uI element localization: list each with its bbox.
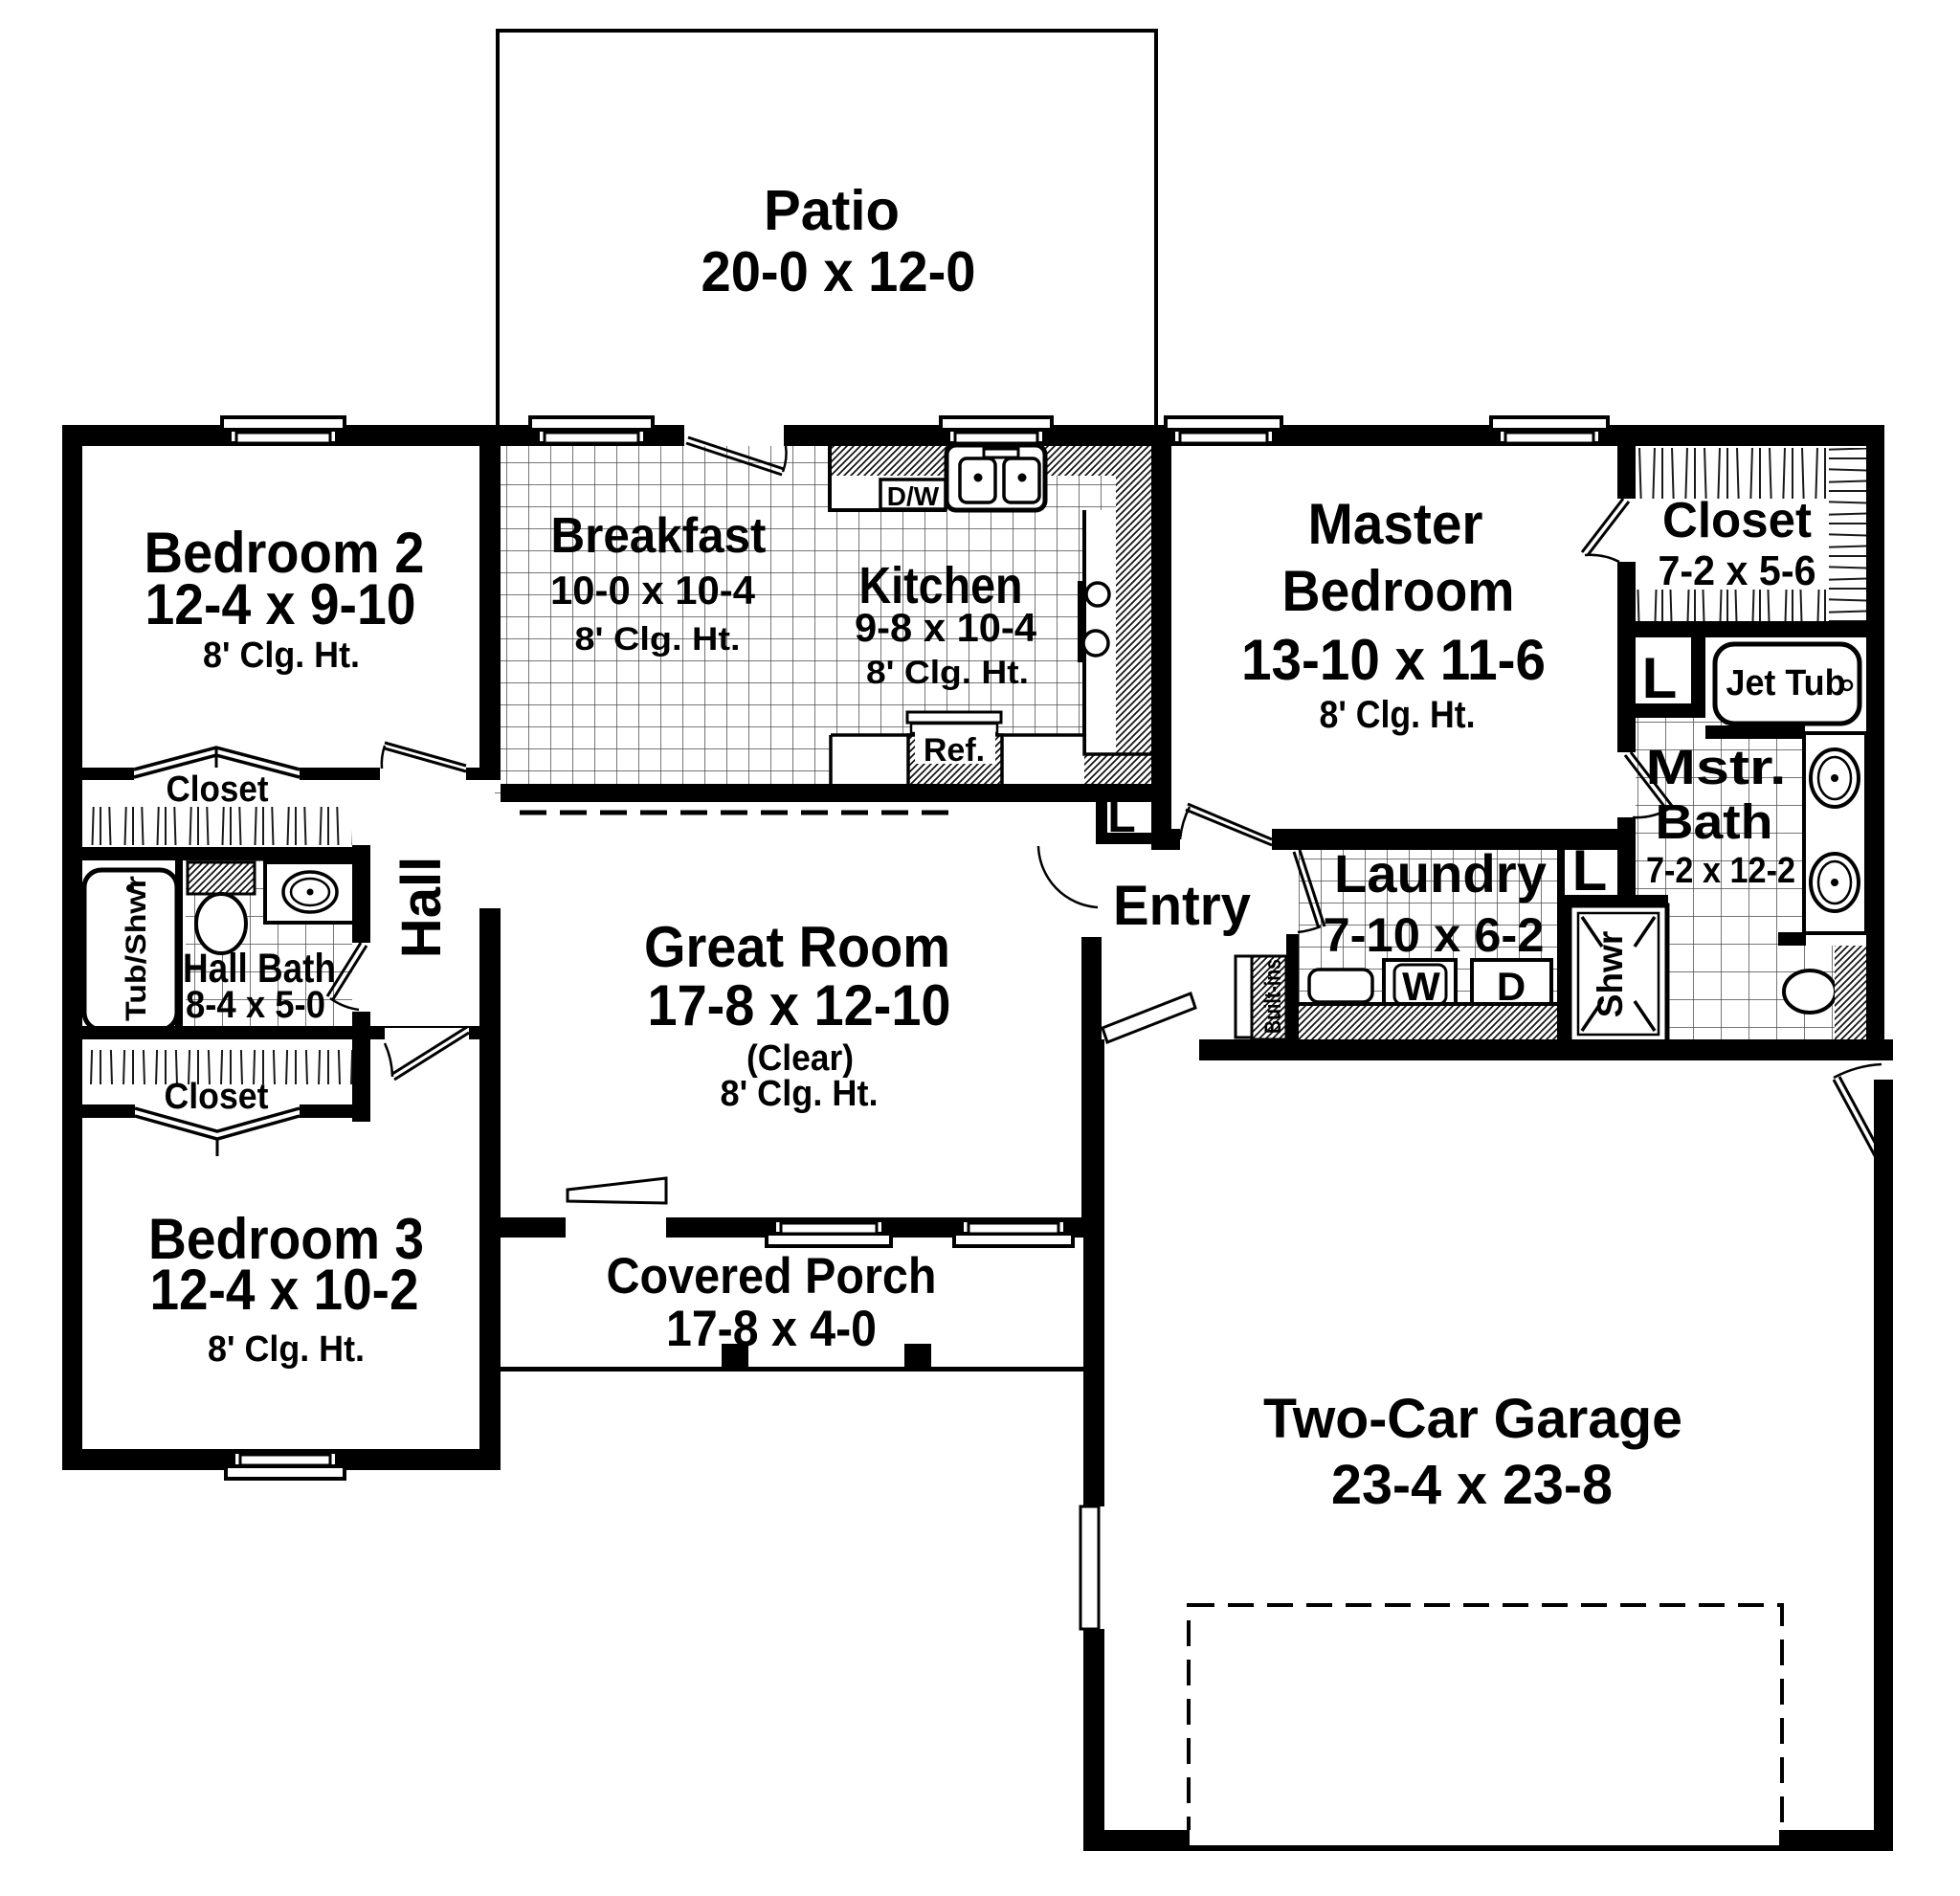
svg-text:Two-Car Garage: Two-Car Garage — [1263, 1388, 1682, 1450]
svg-text:7-2 x 5-6: 7-2 x 5-6 — [1659, 547, 1816, 594]
svg-text:17-8 x 4-0: 17-8 x 4-0 — [666, 1301, 877, 1357]
svg-text:Entry: Entry — [1113, 875, 1251, 937]
svg-text:7-10 x 6-2: 7-10 x 6-2 — [1324, 908, 1545, 962]
svg-text:8' Clg. Ht.: 8' Clg. Ht. — [203, 636, 360, 676]
svg-text:Mstr.: Mstr. — [1646, 740, 1787, 794]
svg-text:Bath: Bath — [1656, 794, 1773, 849]
svg-text:8' Clg. Ht.: 8' Clg. Ht. — [721, 1074, 879, 1114]
svg-text:8-4 x 5-0: 8-4 x 5-0 — [186, 984, 325, 1026]
svg-text:(Clear): (Clear) — [746, 1038, 854, 1079]
svg-text:L: L — [1642, 646, 1678, 710]
svg-text:D: D — [1497, 964, 1526, 1009]
svg-text:Shwr: Shwr — [1591, 931, 1630, 1017]
svg-text:Closet: Closet — [165, 1077, 269, 1117]
svg-text:L: L — [1572, 838, 1608, 903]
svg-text:Covered Porch: Covered Porch — [607, 1248, 937, 1305]
svg-text:L: L — [1107, 792, 1135, 842]
svg-text:Laundry: Laundry — [1334, 843, 1547, 903]
svg-text:20-0 x 12-0: 20-0 x 12-0 — [702, 240, 976, 303]
svg-text:Closet: Closet — [1662, 493, 1812, 548]
svg-text:Jet Tub: Jet Tub — [1726, 663, 1846, 703]
svg-text:Bedroom: Bedroom — [1282, 559, 1515, 623]
svg-text:Breakfast: Breakfast — [551, 508, 767, 564]
svg-text:Ref.: Ref. — [924, 732, 985, 769]
svg-text:Built-ins: Built-ins — [1260, 959, 1286, 1034]
svg-text:12-4 x 9-10: 12-4 x 9-10 — [145, 572, 416, 636]
svg-text:Master: Master — [1308, 492, 1483, 556]
svg-text:23-4 x 23-8: 23-4 x 23-8 — [1331, 1454, 1613, 1516]
svg-text:12-4 x 10-2: 12-4 x 10-2 — [150, 1258, 419, 1322]
svg-text:Great Room: Great Room — [644, 915, 950, 979]
svg-text:Closet: Closet — [167, 770, 269, 810]
svg-text:W: W — [1402, 964, 1440, 1009]
svg-text:8' Clg. Ht.: 8' Clg. Ht. — [208, 1329, 365, 1370]
svg-text:9-8 x 10-4: 9-8 x 10-4 — [855, 605, 1037, 650]
svg-text:8' Clg. Ht.: 8' Clg. Ht. — [575, 621, 741, 658]
svg-text:D/W: D/W — [887, 481, 940, 511]
svg-text:Hall: Hall — [390, 857, 453, 958]
svg-text:Patio: Patio — [764, 179, 900, 242]
svg-text:13-10 x 11-6: 13-10 x 11-6 — [1241, 628, 1546, 692]
svg-text:17-8 x 12-10: 17-8 x 12-10 — [648, 973, 951, 1037]
svg-text:8' Clg. Ht.: 8' Clg. Ht. — [866, 655, 1029, 691]
svg-text:7-2 x 12-2: 7-2 x 12-2 — [1646, 851, 1795, 891]
svg-text:10-0 x 10-4: 10-0 x 10-4 — [550, 568, 756, 613]
svg-text:8' Clg. Ht.: 8' Clg. Ht. — [1320, 694, 1476, 736]
svg-text:Tub/Shwr: Tub/Shwr — [121, 876, 152, 1021]
